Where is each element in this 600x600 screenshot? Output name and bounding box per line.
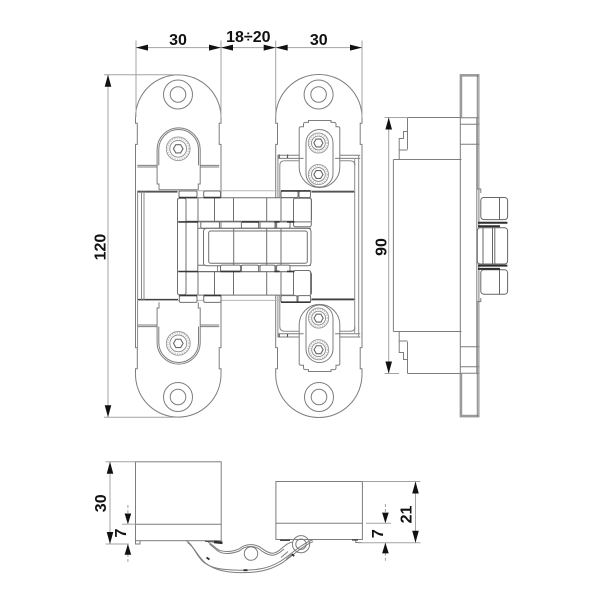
svg-text:30: 30 [169, 32, 187, 49]
svg-text:18÷20: 18÷20 [226, 29, 270, 46]
svg-text:90: 90 [373, 238, 390, 256]
svg-text:30: 30 [310, 32, 328, 49]
svg-text:7: 7 [370, 529, 387, 538]
svg-text:21: 21 [399, 506, 416, 524]
svg-text:120: 120 [93, 234, 110, 261]
svg-text:7: 7 [113, 528, 130, 537]
svg-text:30: 30 [93, 494, 110, 512]
